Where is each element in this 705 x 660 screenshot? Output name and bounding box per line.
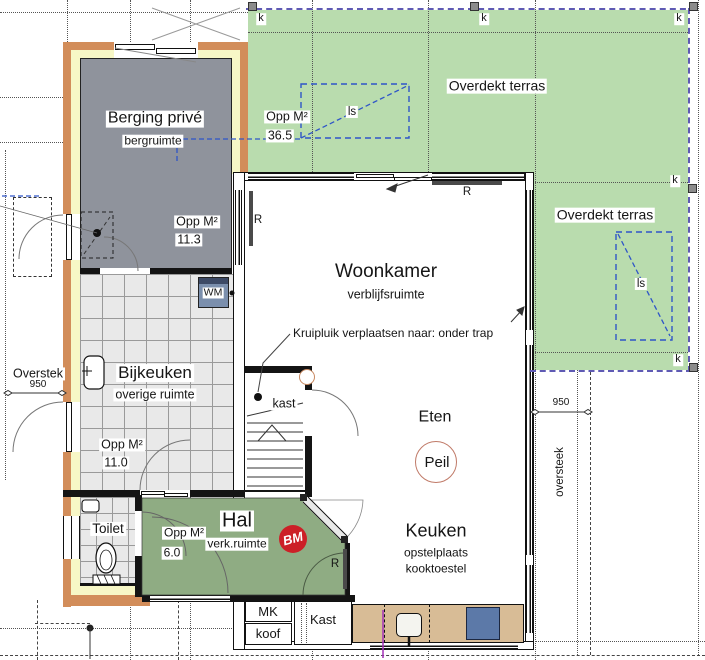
column-label: k	[670, 175, 680, 187]
fixture-label: MK	[256, 605, 280, 619]
dimension-line-right	[531, 410, 592, 415]
column-label: k	[674, 13, 684, 25]
kruipluik-leader	[258, 334, 290, 392]
column-post	[689, 2, 698, 11]
door-swing	[312, 390, 358, 436]
toilet-cistern	[93, 575, 120, 584]
room-name: Keuken	[403, 522, 468, 541]
leader-line	[0, 206, 97, 233]
peil-label: Peil	[422, 455, 451, 471]
door-swing	[140, 440, 190, 490]
area-value: 11.3	[175, 233, 202, 246]
column-post	[248, 2, 257, 11]
radiator-label: R	[329, 558, 341, 570]
room-name: Eten	[417, 410, 454, 427]
fixture-label: koof	[254, 627, 283, 641]
skylight-label: ls	[346, 106, 358, 118]
radiator	[343, 549, 347, 589]
area-label: Opp M²	[162, 527, 206, 540]
area-label: Opp M²	[264, 110, 310, 123]
room-subtype: verk.ruimte	[205, 538, 268, 551]
dimension-label: oversteek	[554, 445, 566, 499]
column-post	[470, 2, 479, 11]
door-swing-line	[115, 48, 196, 62]
skylight-label: ls	[635, 278, 647, 290]
terrace-boundary-bottom	[530, 370, 692, 372]
area-value: 6.0	[162, 547, 183, 560]
cooktop	[466, 607, 500, 640]
toilet-bowl	[96, 543, 116, 573]
staircase	[247, 403, 303, 486]
column-label: k	[479, 13, 489, 25]
column-label: k	[256, 13, 266, 25]
terrace-name: Overdekt terras	[555, 208, 655, 223]
room-name: Hal	[220, 511, 254, 532]
area-value: 36.5	[266, 129, 294, 142]
room-subtype: opstelplaats	[402, 547, 470, 560]
bm-circle: BM	[279, 525, 307, 553]
radiator	[432, 181, 502, 185]
fixture-label: WM	[203, 287, 224, 298]
dimension-value: 950	[551, 398, 572, 409]
toilet-sink	[82, 500, 99, 512]
room-name: Woonkamer	[333, 262, 439, 282]
room-subtype: bergruimte	[122, 135, 183, 148]
dimension-line-left	[4, 391, 66, 396]
area-value: 11.0	[102, 456, 129, 469]
column-post	[688, 184, 697, 193]
fixture-label: Kast	[308, 613, 338, 627]
door-post	[300, 494, 307, 501]
door-post	[341, 536, 348, 543]
door-swing	[13, 402, 63, 452]
peil-circle: Peil	[415, 441, 457, 483]
room-subtype: kooktoestel	[404, 563, 469, 576]
radiator-label: R	[252, 214, 264, 226]
wm-dot	[230, 291, 235, 296]
ceiling-fixture	[299, 369, 315, 385]
column-post	[689, 363, 698, 372]
floor-plan: Peil BM Berging privé bergruimte Opp M² …	[0, 0, 705, 660]
dimension-value: 950	[28, 380, 49, 391]
kitchen-sink	[396, 613, 422, 637]
room-subtype: overige ruimte	[113, 388, 196, 401]
area-label: Opp M²	[174, 215, 220, 228]
washing-machine-top	[199, 278, 228, 284]
room-name: Bijkeuken	[116, 364, 194, 382]
room-name: Berging privé	[106, 111, 204, 128]
room-subtype: verblijfsruimte	[345, 288, 426, 301]
kruipluik-dot	[254, 393, 262, 401]
closet-label: kast	[271, 397, 298, 410]
door-swing	[104, 237, 138, 271]
area-label: Opp M²	[99, 438, 145, 451]
terrace-name: Overdekt terras	[447, 79, 547, 94]
column-label: k	[673, 354, 683, 366]
room-name: Toilet	[90, 522, 126, 536]
annotation-kruipluik: Kruipluik verplaatsen naar: onder trap	[291, 327, 495, 340]
radiator-label: R	[461, 186, 473, 198]
